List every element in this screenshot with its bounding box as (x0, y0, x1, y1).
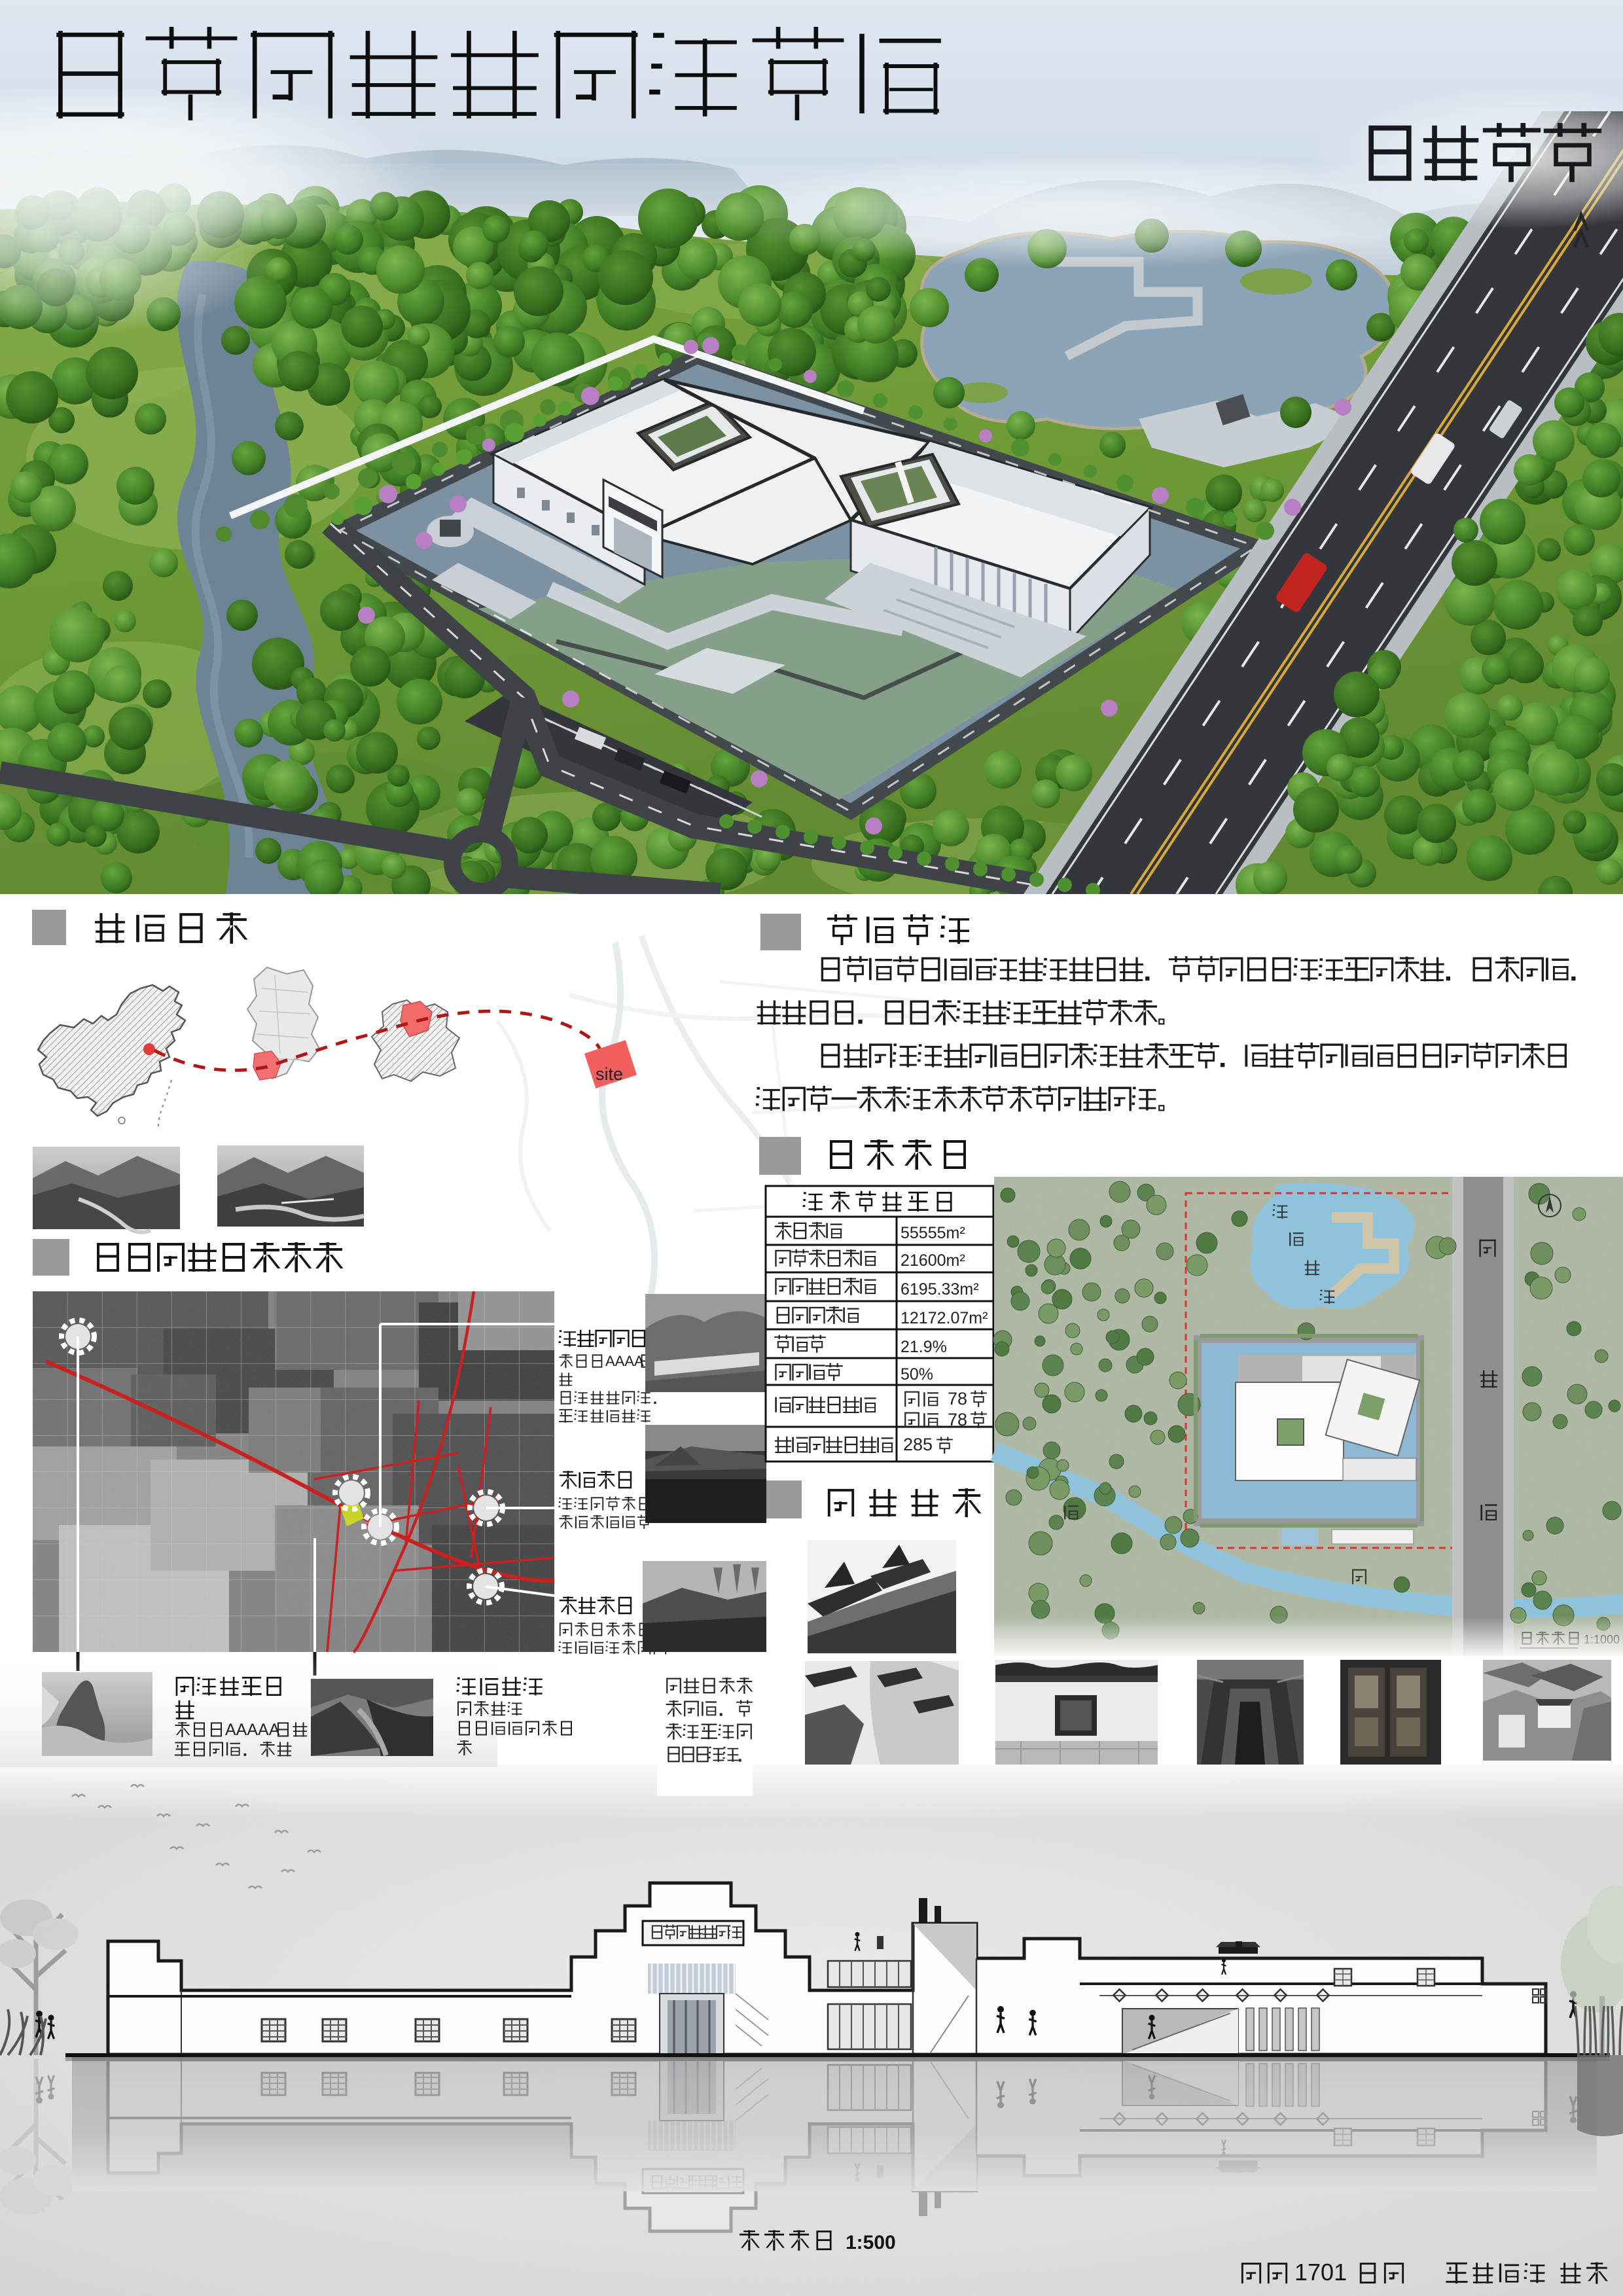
svg-text:AAAAA: AAAAA (225, 1721, 280, 1739)
svg-text:21600m²: 21600m² (901, 1251, 965, 1270)
svg-text:1701: 1701 (1294, 2259, 1347, 2286)
svg-text:78: 78 (948, 1410, 967, 1429)
svg-text:50%: 50% (901, 1365, 933, 1384)
svg-text:21.9%: 21.9% (901, 1338, 947, 1356)
svg-text:285: 285 (903, 1435, 933, 1454)
svg-text:1:500: 1:500 (846, 2232, 896, 2253)
svg-text:AAAA: AAAA (605, 1353, 644, 1369)
svg-text:site: site (596, 1064, 623, 1084)
svg-text:55555m²: 55555m² (901, 1224, 965, 1242)
svg-text:6195.33m²: 6195.33m² (901, 1280, 979, 1299)
svg-text:78: 78 (948, 1389, 967, 1408)
svg-text:12172.07m²: 12172.07m² (901, 1309, 988, 1327)
